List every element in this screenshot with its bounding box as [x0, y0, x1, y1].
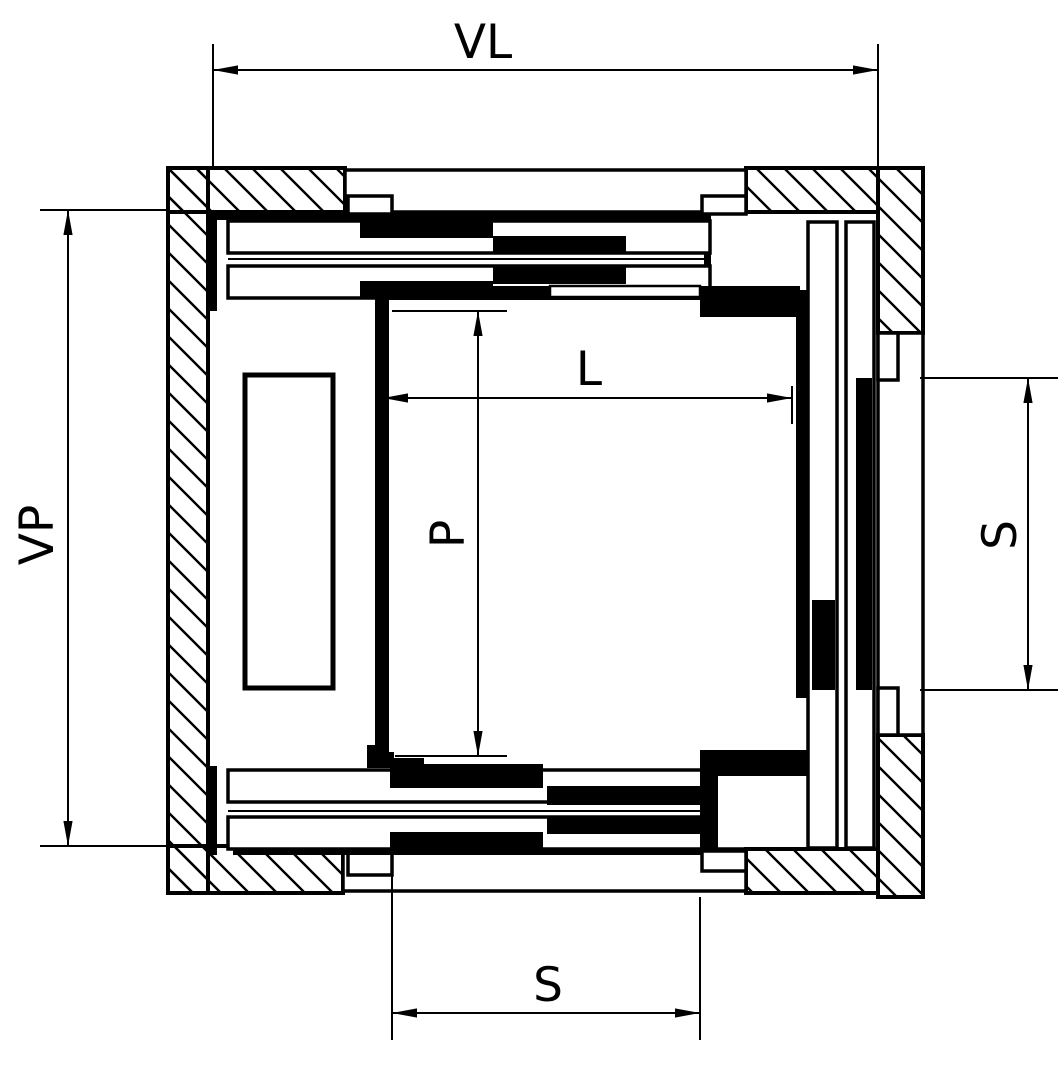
wall-right-lower	[878, 735, 923, 897]
door-bracket-right-upper	[878, 333, 898, 380]
door-bracket-top-right	[702, 196, 746, 214]
car-door-return-bottom	[700, 768, 718, 850]
label-vp: VP	[10, 505, 65, 566]
door-unit-right	[808, 222, 874, 848]
label-s-bottom: S	[533, 958, 563, 1013]
label-vl: VL	[454, 15, 512, 70]
door-bracket-bottom-left	[348, 853, 392, 875]
door-panel-bottom-4	[390, 832, 543, 849]
door-panel-top-3	[493, 266, 626, 284]
car-wall-left	[375, 286, 389, 767]
car-wall-foot-step3	[390, 758, 424, 778]
door-bracket-right-lower	[878, 688, 898, 735]
wall-header-right	[878, 333, 923, 735]
dimension-door-bottom: S	[392, 869, 700, 1040]
door-panel-bottom-2	[547, 786, 703, 805]
wall-bottom-right	[746, 849, 878, 893]
elevator-plan-svg: VL VP L P S S	[0, 0, 1064, 1066]
car-wall-top-slot	[550, 286, 700, 297]
door-track-right-inner	[808, 222, 837, 848]
label-l: L	[576, 342, 602, 397]
dimension-car-width: L	[383, 342, 792, 424]
door-bracket-bottom-right	[702, 851, 746, 871]
wall-header-top	[345, 170, 746, 212]
dimension-shaft-width: VL	[213, 15, 878, 167]
door-panel-bottom-3	[547, 817, 703, 834]
dimension-car-depth: P	[392, 311, 507, 756]
wall-corner-top-right	[878, 168, 923, 333]
door-panel-right-2	[856, 378, 872, 690]
technical-drawing-canvas: VL VP L P S S	[0, 0, 1064, 1066]
wall-top-left	[168, 168, 345, 212]
wall-header-bottom	[343, 849, 746, 891]
door-end-left-bottom	[210, 766, 217, 855]
label-s-side: S	[973, 520, 1028, 550]
door-header-line-bottom	[233, 848, 703, 855]
car-wall-top-right-step	[700, 290, 812, 317]
door-panel-top-2	[493, 236, 626, 254]
door-end-left-top	[210, 213, 217, 311]
label-p: P	[421, 520, 476, 548]
counterweight-box	[245, 375, 333, 688]
door-panel-right-1	[812, 600, 835, 690]
door-unit-bottom	[210, 764, 703, 855]
dimension-door-side: S	[920, 378, 1058, 690]
wall-top-right	[746, 168, 878, 212]
door-bracket-top-left	[348, 196, 392, 214]
door-panel-top-1	[360, 215, 493, 238]
dimension-shaft-depth: VP	[10, 210, 167, 846]
car-wall-foot-step1	[367, 745, 382, 768]
wall-left	[168, 168, 208, 893]
